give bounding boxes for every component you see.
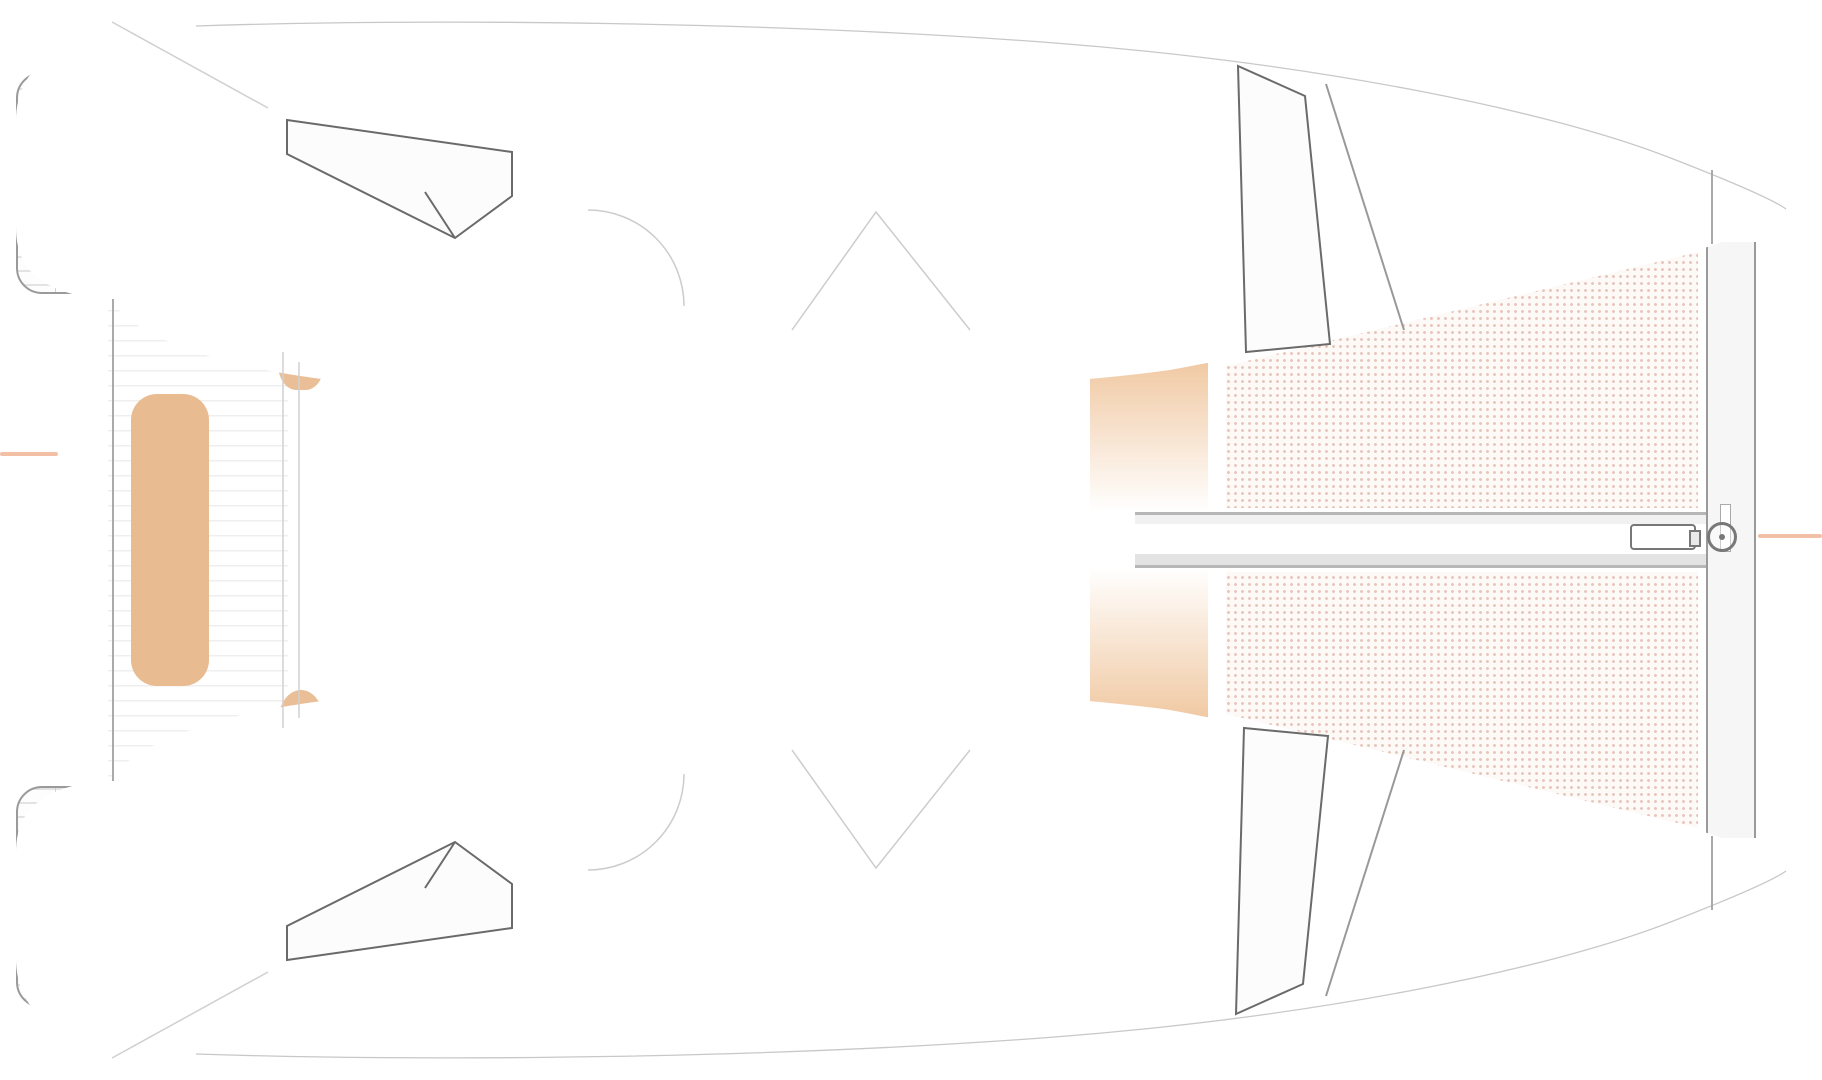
cockpit-table-starboard — [176, 798, 234, 982]
wardrobe-fwd-stbd-1 — [1300, 768, 1357, 870]
locker-books-stbd-3 — [584, 984, 682, 1034]
pillow — [1103, 899, 1170, 959]
floor-corridor-stbd-c — [986, 774, 1086, 968]
locker-books-stbd-2 — [914, 728, 986, 780]
shower-entry-stbd — [682, 1008, 786, 1046]
companionway-stairs-stbd — [778, 702, 874, 822]
cockpit-bench-center — [131, 394, 209, 686]
locker-books-port-2 — [988, 54, 1085, 111]
locker-dishes-stbd-1 — [684, 704, 780, 782]
floor-corridor-port-c — [986, 112, 1086, 306]
furniture-layer — [0, 0, 1822, 1080]
shelf-aft-port-1 — [292, 42, 389, 114]
shower-port — [876, 80, 986, 210]
locker-books-stbd-4 — [998, 982, 1060, 1030]
galley-counter-port — [676, 32, 768, 110]
shower-starboard — [682, 874, 786, 1006]
wardrobe-fwd-port-1 — [1334, 100, 1392, 200]
floor-aft-cabin-starboard — [512, 748, 586, 966]
foredeck-shade-port — [1090, 344, 1208, 512]
foredeck-shade-starboard — [1090, 568, 1208, 736]
cockpit-table-port — [176, 96, 234, 282]
bowsprit-beam — [1135, 512, 1707, 568]
floor-aft-cabin-port — [512, 114, 586, 332]
waterline-mark-left — [0, 452, 58, 456]
locker-dishes-stbd-3 — [992, 734, 1064, 784]
shelf-aft-stbd-1 — [292, 966, 389, 1038]
locker-books-port-1 — [584, 52, 672, 110]
forestay-ring — [1707, 522, 1737, 552]
bowsprit-fitting — [1630, 524, 1696, 550]
catamaran-floorplan — [0, 0, 1822, 1080]
cockpit-bench-port — [101, 84, 156, 298]
locker-books-stbd-1 — [590, 716, 676, 778]
locker-books-port-3 — [588, 306, 673, 380]
floor-corridor-port-b — [586, 212, 986, 306]
shelf-aft-port-2 — [396, 54, 488, 116]
locker-dishes-port-1 — [788, 306, 882, 380]
shelf-aft-stbd-2 — [396, 964, 488, 1026]
cockpit-bench-starboard — [101, 782, 156, 1000]
toilet-port — [788, 50, 870, 118]
toilet-starboard — [790, 960, 872, 1028]
locker-books-port-4 — [896, 304, 984, 380]
locker-dishes-stbd-2 — [882, 728, 912, 778]
wardrobe-fwd-port-2 — [1328, 212, 1386, 312]
forestay-line-right — [1758, 534, 1822, 538]
locker-dishes-port-2 — [990, 300, 1066, 352]
companionway-stairs-port — [684, 262, 776, 382]
wardrobe-fwd-stbd-2 — [1310, 880, 1367, 986]
stern-platform-port — [16, 72, 108, 294]
sink-port — [690, 128, 770, 190]
sink-starboard — [896, 892, 976, 954]
counter-stbd — [886, 1008, 990, 1046]
stern-platform-starboard — [16, 786, 108, 1008]
